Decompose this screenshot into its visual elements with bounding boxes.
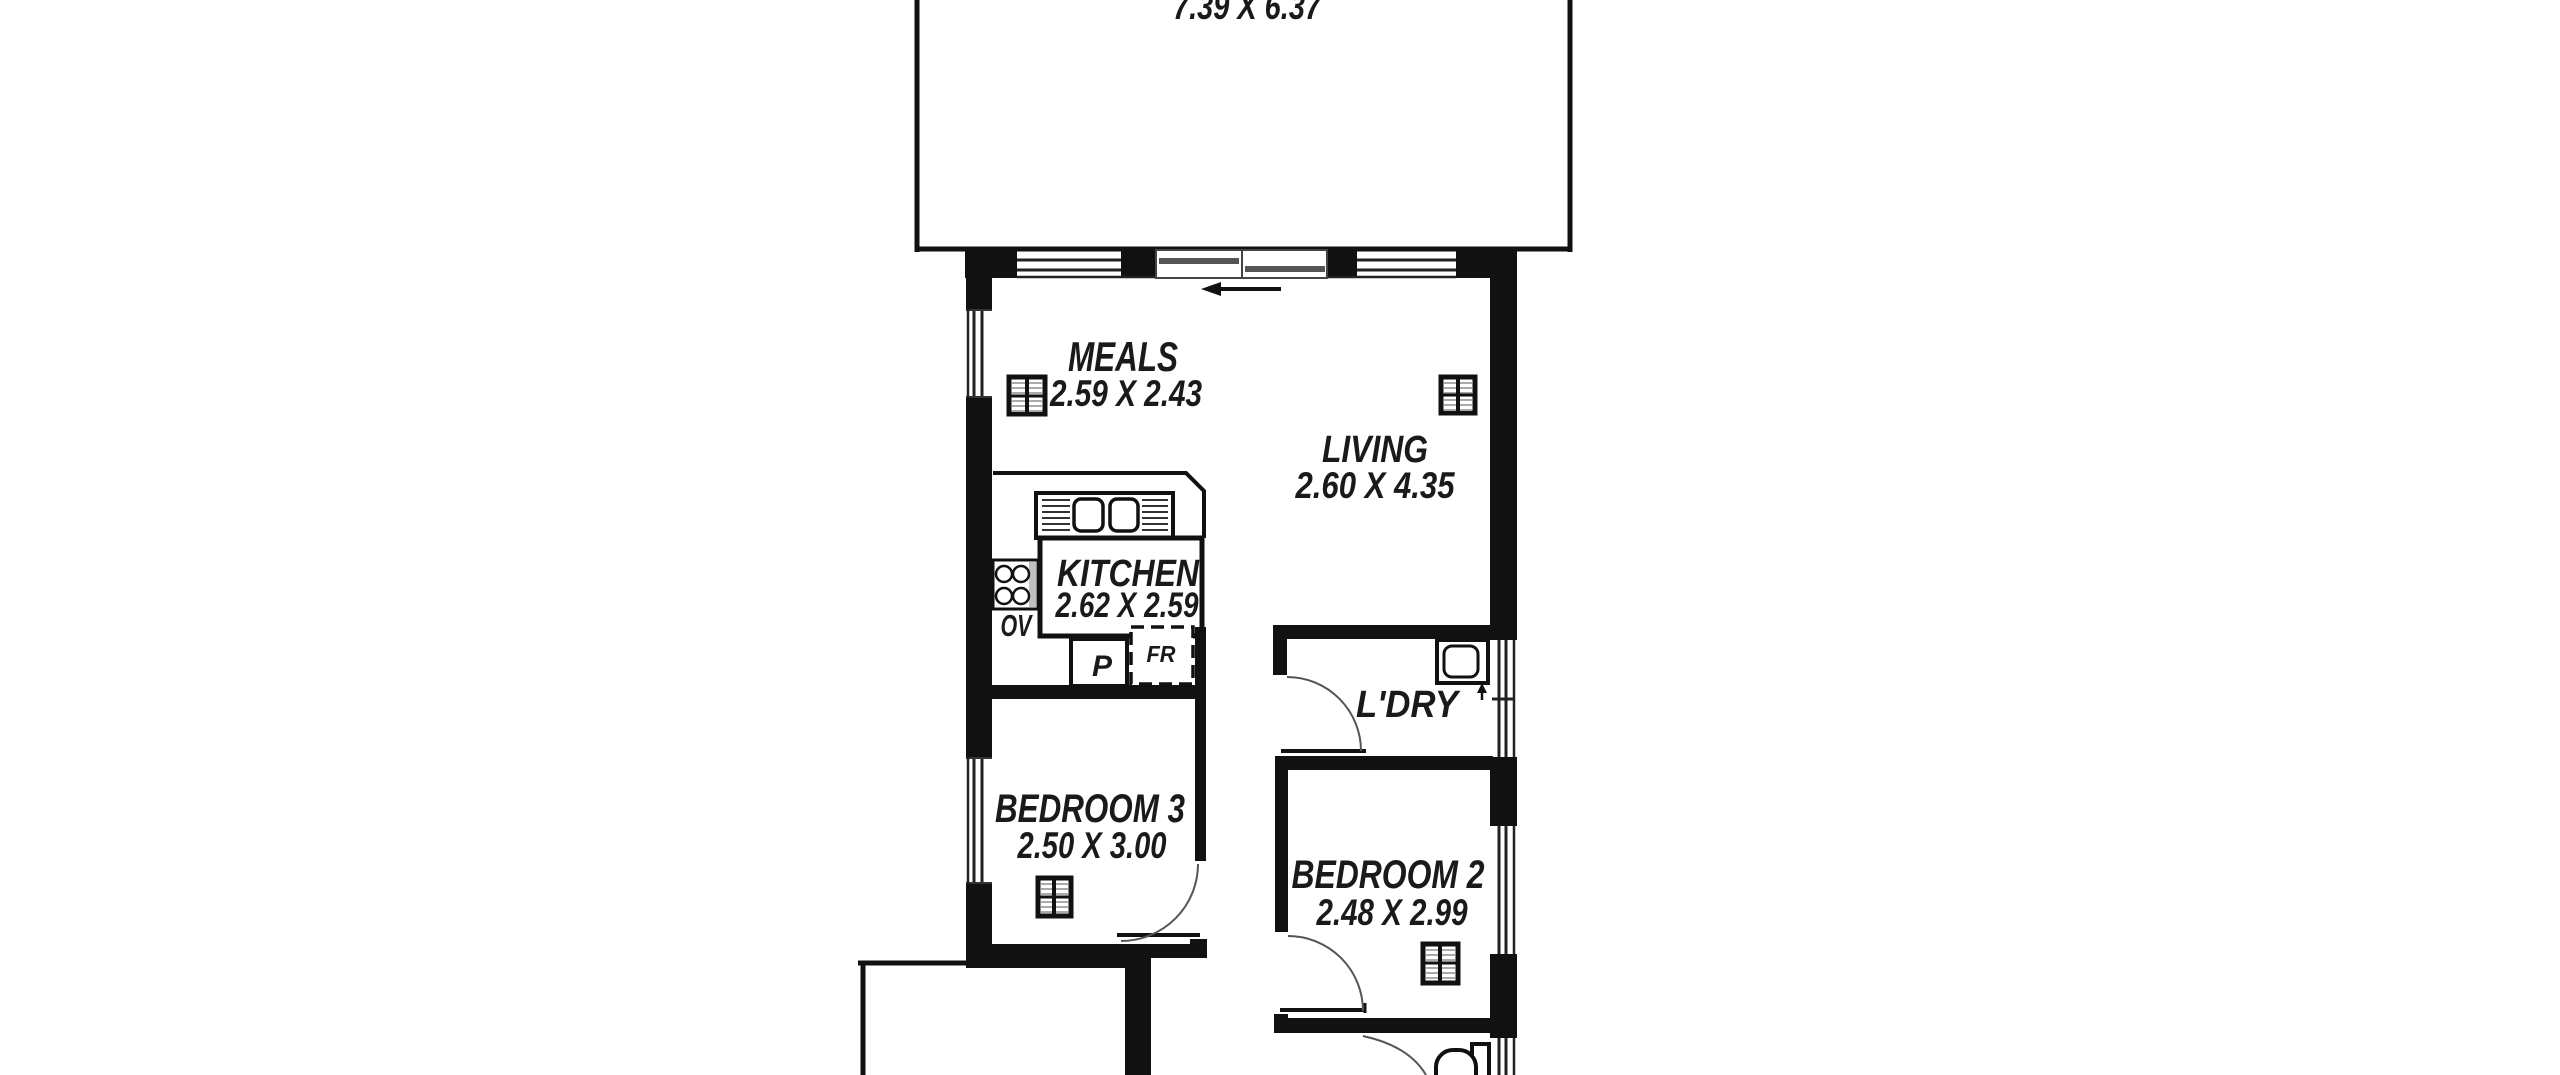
svg-text:2.50 X 3.00: 2.50 X 3.00 [1017,825,1167,866]
svg-text:P: P [1092,650,1113,683]
svg-text:2.62 X 2.59: 2.62 X 2.59 [1055,586,1199,625]
svg-text:2.48 X 2.99: 2.48 X 2.99 [1316,892,1468,933]
svg-text:2.60 X 4.35: 2.60 X 4.35 [1295,465,1456,506]
svg-text:7.39 X 6.37: 7.39 X 6.37 [1173,0,1323,27]
svg-text:L'DRY: L'DRY [1356,684,1461,726]
svg-text:BEDROOM 2: BEDROOM 2 [1292,853,1485,897]
svg-text:FR: FR [1147,641,1176,667]
svg-text:2.59 X 2.43: 2.59 X 2.43 [1049,373,1202,414]
svg-text:OV: OV [1001,608,1034,643]
